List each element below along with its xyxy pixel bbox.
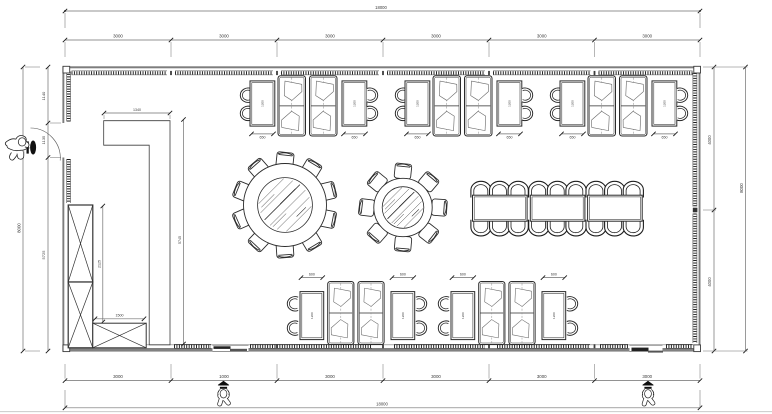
svg-text:1200: 1200 (401, 312, 405, 319)
svg-text:3000: 3000 (325, 34, 335, 39)
svg-text:8000: 8000 (17, 223, 22, 233)
svg-text:2125: 2125 (97, 260, 101, 268)
svg-text:3000: 3000 (325, 374, 335, 379)
svg-text:600: 600 (551, 272, 557, 276)
svg-text:3000: 3000 (642, 34, 652, 39)
svg-text:650: 650 (662, 135, 668, 139)
svg-text:3000: 3000 (642, 374, 652, 379)
svg-text:1500: 1500 (116, 314, 124, 318)
svg-text:3000: 3000 (113, 374, 123, 379)
svg-text:600: 600 (309, 272, 315, 276)
svg-text:3000: 3000 (537, 34, 547, 39)
svg-text:1200: 1200 (552, 312, 556, 319)
svg-text:18000: 18000 (375, 5, 387, 10)
svg-text:4000: 4000 (707, 135, 712, 145)
svg-text:650: 650 (260, 135, 266, 139)
svg-text:600: 600 (400, 272, 406, 276)
svg-text:650: 650 (415, 135, 421, 139)
svg-text:1200: 1200 (508, 100, 512, 107)
svg-text:1200: 1200 (261, 100, 265, 107)
svg-text:1200: 1200 (353, 100, 357, 107)
svg-text:3000: 3000 (431, 34, 441, 39)
svg-text:650: 650 (352, 135, 358, 139)
svg-text:1200: 1200 (663, 100, 667, 107)
svg-text:1000: 1000 (219, 374, 229, 379)
svg-text:3000: 3000 (537, 374, 547, 379)
svg-text:5725: 5725 (41, 250, 46, 260)
svg-text:3000: 3000 (219, 34, 229, 39)
svg-text:1140: 1140 (41, 91, 46, 100)
svg-text:1200: 1200 (461, 312, 465, 319)
svg-text:4000: 4000 (707, 277, 712, 287)
svg-text:3000: 3000 (431, 374, 441, 379)
svg-text:1340: 1340 (133, 108, 141, 112)
svg-text:18000: 18000 (376, 401, 388, 406)
svg-text:3000: 3000 (113, 34, 123, 39)
svg-text:1200: 1200 (571, 100, 575, 107)
svg-text:1200: 1200 (310, 312, 314, 319)
svg-text:650: 650 (507, 135, 513, 139)
svg-text:1200: 1200 (416, 100, 420, 107)
svg-text:650: 650 (570, 135, 576, 139)
svg-text:600: 600 (460, 272, 466, 276)
svg-text:5745: 5745 (178, 236, 182, 244)
svg-text:1135: 1135 (41, 135, 46, 144)
svg-text:8000: 8000 (739, 183, 744, 193)
